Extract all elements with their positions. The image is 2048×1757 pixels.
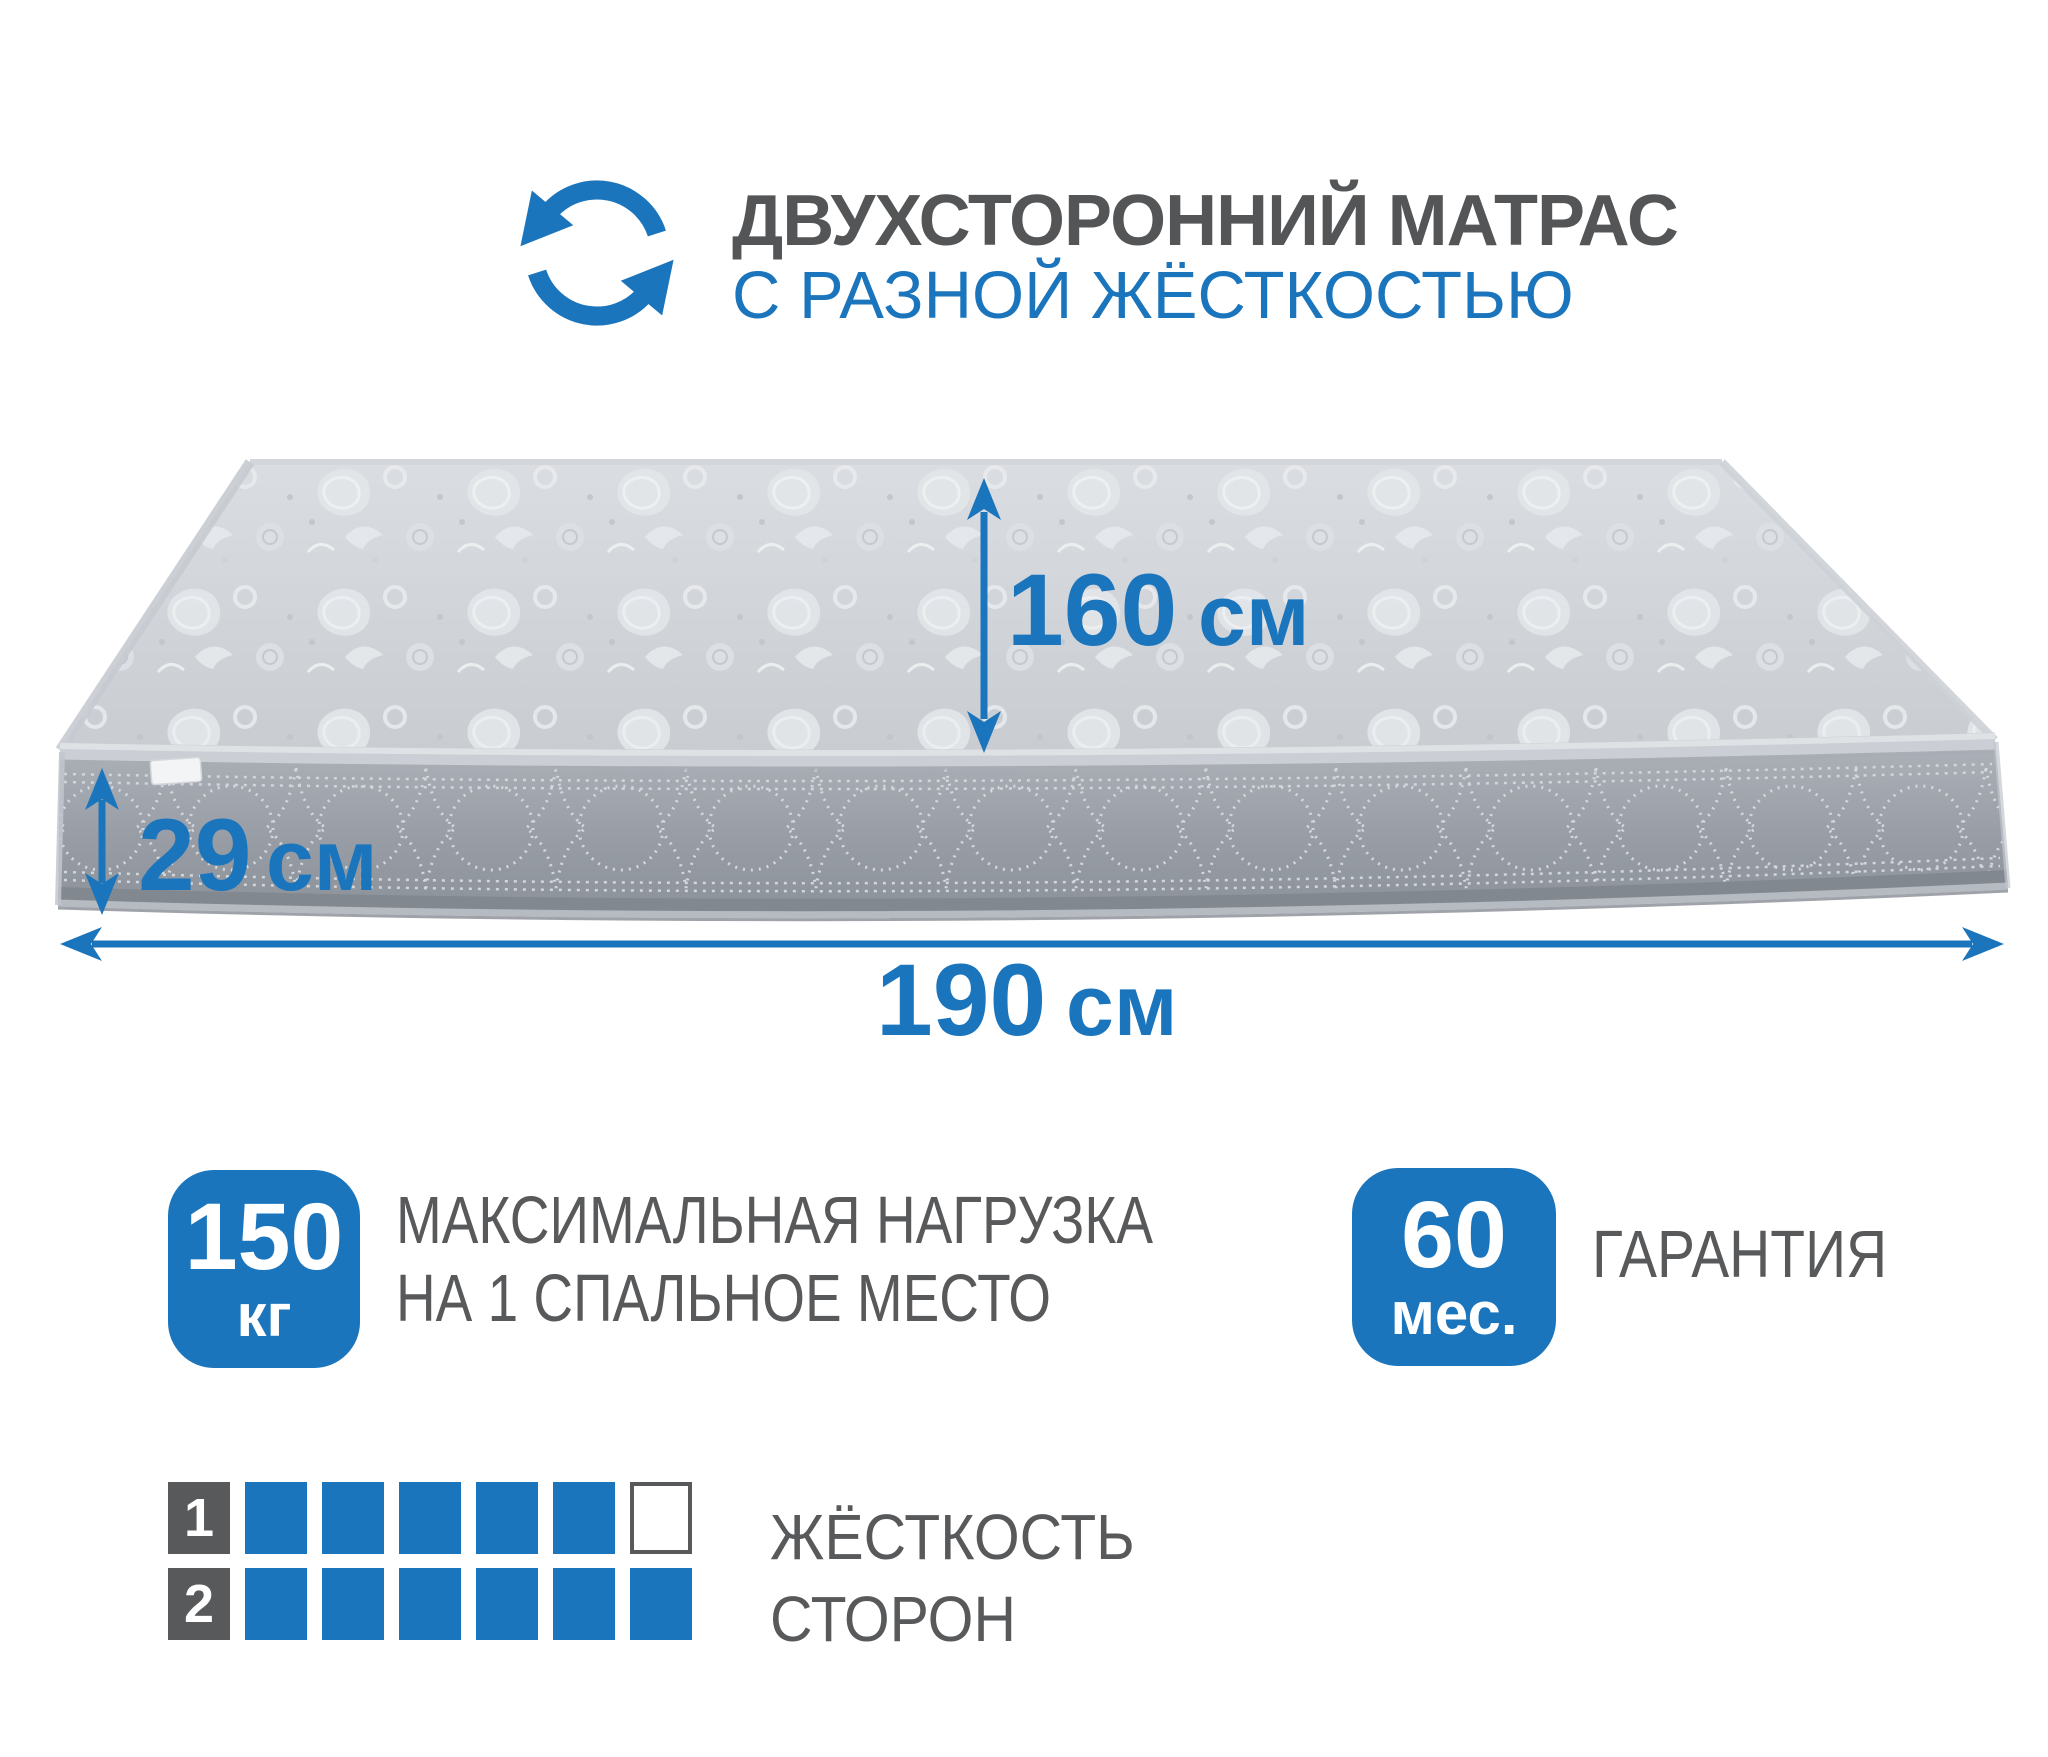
warranty-badge: 60 мес.: [1352, 1168, 1556, 1366]
height-dimension-unit: см: [266, 813, 377, 909]
firmness-caption-line1: ЖЁСТКОСТЬ: [770, 1496, 1135, 1578]
firmness-row-label: 1: [168, 1482, 230, 1554]
max-load-caption-line2: НА 1 СПАЛЬНОЕ МЕСТО: [396, 1260, 1153, 1338]
firmness-cell-filled: [476, 1482, 538, 1554]
firmness-cell-filled: [630, 1568, 692, 1640]
length-dimension-value: 190: [876, 943, 1046, 1057]
max-load-unit: кг: [236, 1285, 291, 1347]
firmness-cell-filled: [553, 1482, 615, 1554]
firmness-cell-filled: [553, 1568, 615, 1640]
firmness-grid: 12: [168, 1482, 692, 1640]
page-title: ДВУХСТОРОННИЙ МАТРАС: [732, 185, 1678, 257]
width-dimension-value: 160: [1007, 553, 1177, 667]
warranty-unit: мес.: [1390, 1283, 1517, 1345]
rotate-two-arrows-icon: [500, 190, 695, 316]
warranty-value: 60: [1401, 1189, 1507, 1281]
page-subtitle: С РАЗНОЙ ЖЁСТКОСТЬЮ: [732, 260, 1574, 332]
firmness-cell-filled: [476, 1568, 538, 1640]
max-load-caption: МАКСИМАЛЬНАЯ НАГРУЗКА НА 1 СПАЛЬНОЕ МЕСТ…: [396, 1182, 1153, 1338]
warranty-caption: ГАРАНТИЯ: [1592, 1216, 1887, 1294]
firmness-cell-filled: [322, 1568, 384, 1640]
width-dimension-unit: см: [1198, 568, 1309, 664]
max-load-value: 150: [185, 1191, 344, 1283]
firmness-cell-filled: [322, 1482, 384, 1554]
firmness-cell-filled: [245, 1568, 307, 1640]
firmness-cell-filled: [399, 1482, 461, 1554]
firmness-cell-empty: [630, 1482, 692, 1554]
firmness-cell-filled: [245, 1482, 307, 1554]
firmness-row: 1: [168, 1482, 692, 1554]
max-load-caption-line1: МАКСИМАЛЬНАЯ НАГРУЗКА: [396, 1182, 1153, 1260]
max-load-badge: 150 кг: [168, 1170, 360, 1368]
firmness-row-label: 2: [168, 1568, 230, 1640]
height-dimension-value: 29: [138, 798, 251, 912]
firmness-caption: ЖЁСТКОСТЬ СТОРОН: [770, 1496, 1135, 1660]
infographic-canvas: 160 см 29 см 190 см ДВУХСТОРОННИЙ МАТРАС…: [0, 0, 2048, 1757]
mattress-tag: [150, 757, 202, 784]
firmness-caption-line2: СТОРОН: [770, 1578, 1135, 1660]
firmness-cell-filled: [399, 1568, 461, 1640]
length-dimension-unit: см: [1066, 958, 1177, 1054]
firmness-row: 2: [168, 1568, 692, 1640]
